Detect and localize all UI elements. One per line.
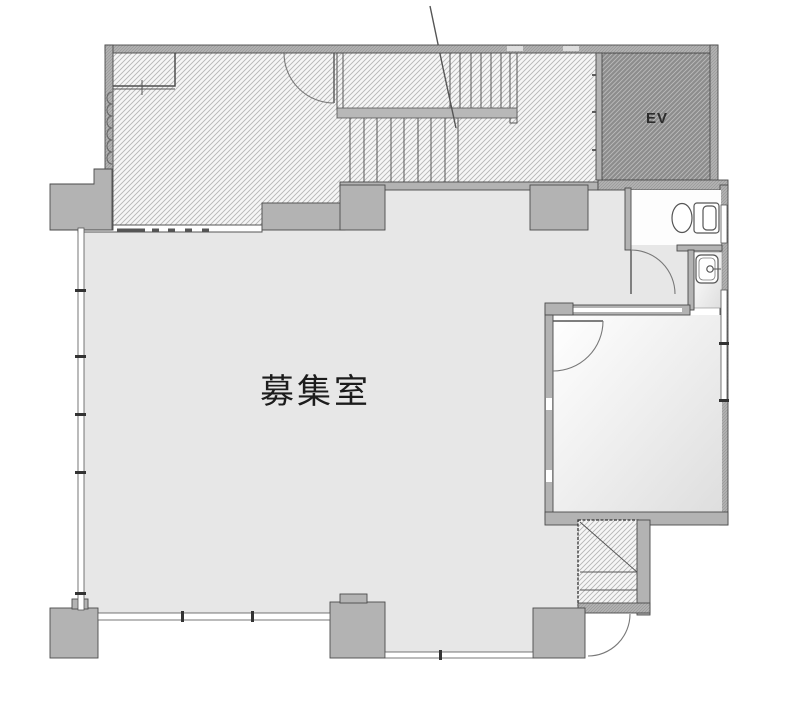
main-room-label: 募集室 bbox=[260, 373, 371, 411]
window-left bbox=[78, 228, 84, 610]
pillar-b bbox=[530, 185, 588, 230]
sink-alcove bbox=[688, 250, 722, 310]
floor-plan-page: EV bbox=[0, 0, 787, 714]
elevator-shaft: EV bbox=[592, 53, 711, 180]
pillar-a bbox=[340, 185, 385, 230]
toilet-fixture-icon bbox=[672, 203, 719, 233]
middle-room bbox=[545, 303, 728, 525]
sink-icon bbox=[696, 255, 721, 283]
column-bottom-mid bbox=[330, 602, 385, 658]
floor-plan-svg: EV bbox=[0, 0, 787, 714]
window-bottom-right bbox=[385, 652, 533, 658]
column-bottom-left bbox=[50, 608, 98, 658]
window-bottom-left bbox=[98, 613, 330, 620]
elevator-label: EV bbox=[646, 110, 668, 127]
window-toilet bbox=[721, 205, 727, 243]
column-bottom-right bbox=[533, 608, 585, 658]
closet bbox=[112, 52, 175, 95]
